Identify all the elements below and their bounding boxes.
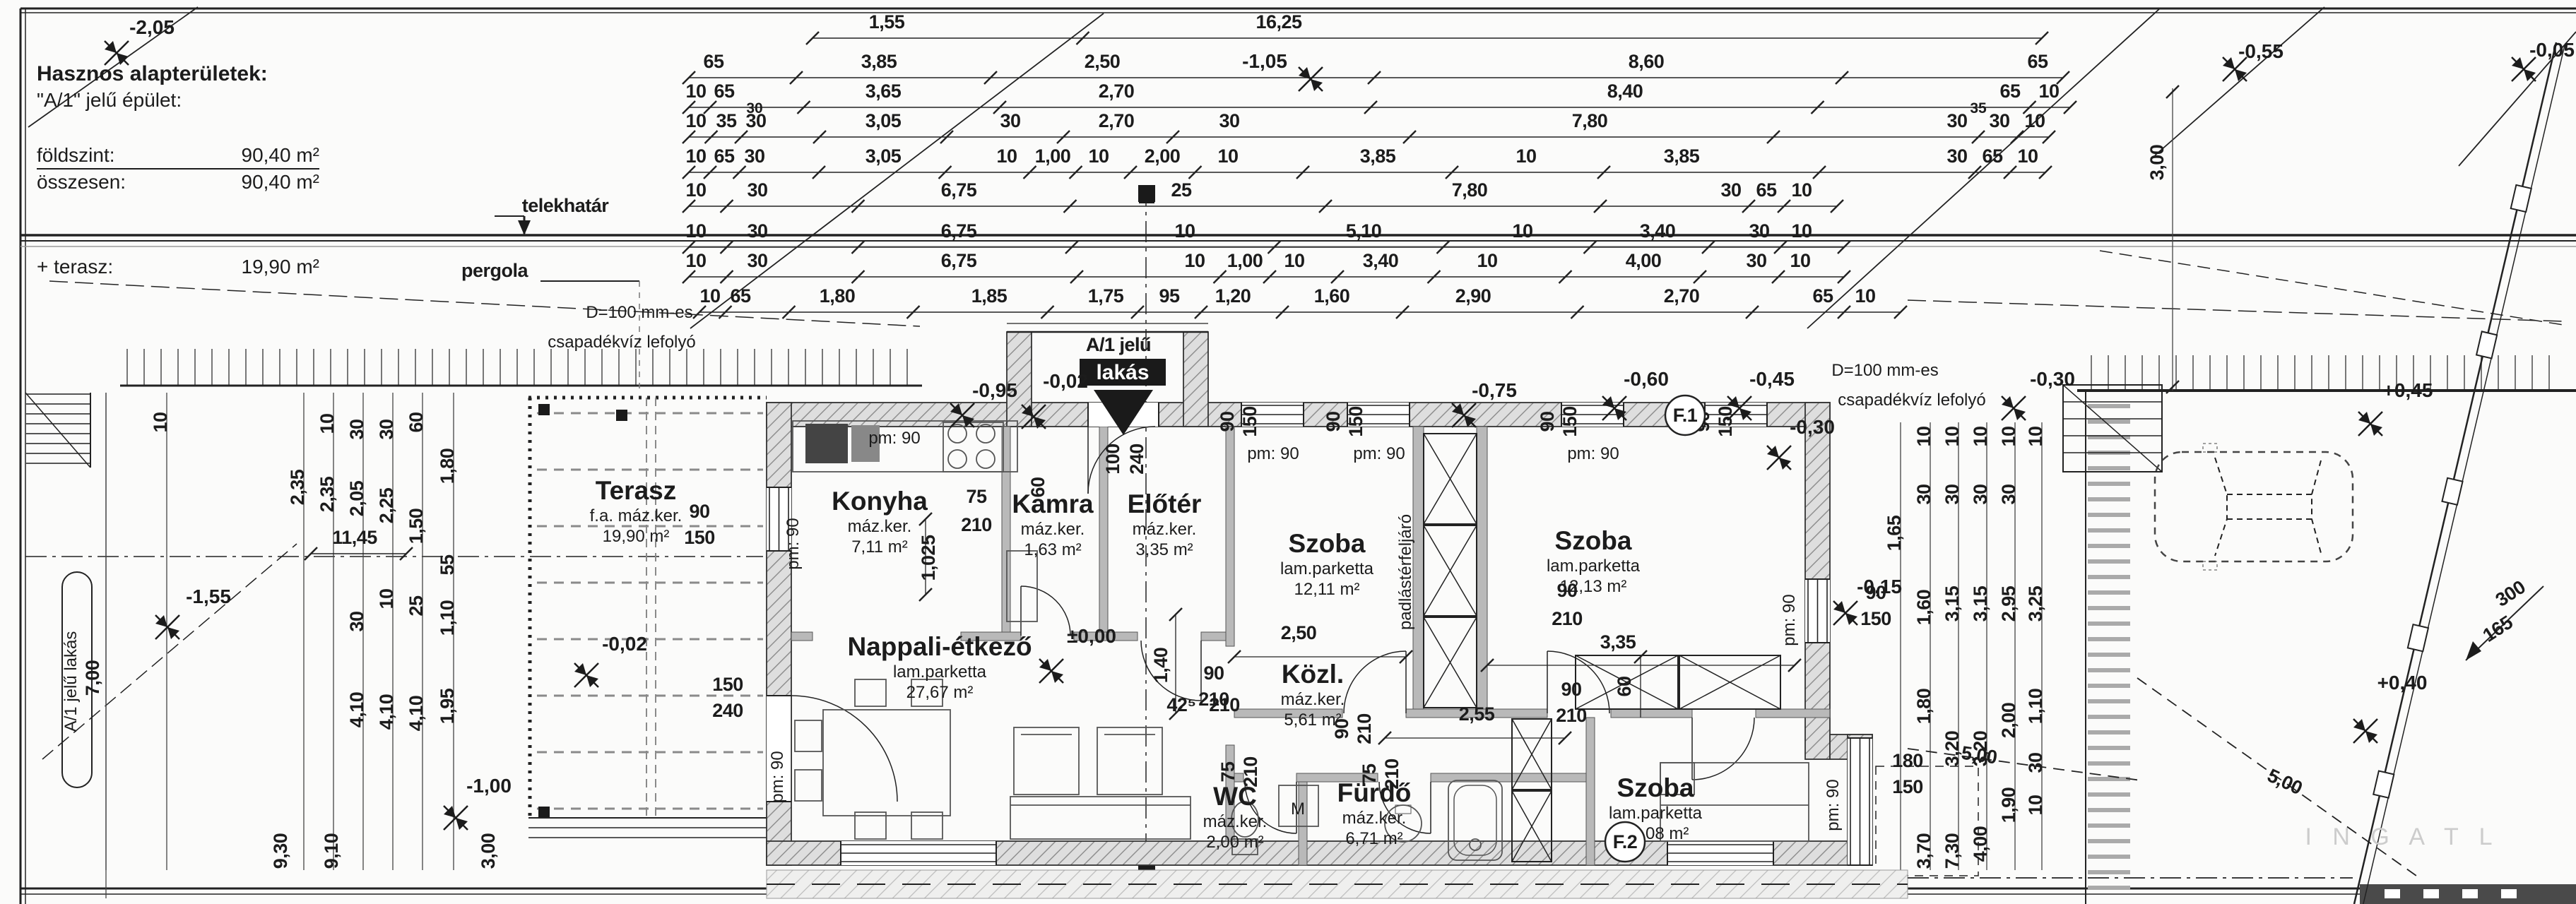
dim-label: 30 [1989,110,2009,131]
annotation-label: 10 [317,413,338,434]
annotation-label: 150 [1715,406,1736,437]
reference-marker: F.1 [1673,405,1698,426]
annotation-label: pm: 90 [1780,594,1799,646]
dim-label: 30 [747,179,767,201]
dim-label: 3,05 [865,145,902,167]
dim-label: 65 [730,285,751,307]
dim-label: 3,40 [1363,250,1399,271]
annotation-label: 10 [1998,426,2019,446]
title-subheading: "A/1" jelű épület: [37,89,333,112]
annotation-label: 10 [2025,426,2046,446]
room-area: 12,13 m² [1560,577,1627,596]
dim-label: 10 [996,145,1017,167]
annotation-label: 90 [1537,411,1558,432]
room-area: 5,61 m² [1284,710,1341,730]
level-value: -0,02 [1043,370,1088,392]
dim-label: 2,50 [1085,51,1121,72]
room-name: WC [1213,782,1257,811]
annotation-label: 5,00 [1960,742,1998,768]
annotation-label: 10 [2025,795,2046,815]
dim-label: 10 [1088,145,1109,167]
area-row-label: összesen: [37,169,187,195]
dim-label: 95 [1159,285,1180,307]
annotation-label: pm: 90 [768,751,787,802]
terrace-value: 19,90 m² [242,256,320,278]
annotation-label: 3,35 [1600,631,1636,653]
annotation-label: 60 [406,412,427,432]
dim-label: 10 [2017,145,2038,167]
dim-label: 6,75 [941,179,977,201]
area-row-label: földszint: [37,143,187,169]
level-value: -1,05 [1242,50,1287,72]
dim-label: 6,75 [941,220,977,242]
room-name: Szoba [1555,526,1632,555]
dim-label: 4,00 [1626,250,1662,271]
area-row-value: 90,40 m² [187,169,319,195]
annotation-label: 3,25 [2025,585,2046,621]
dim-label: 65 [714,81,735,102]
level-value: ±0,00 [1067,625,1116,647]
level-value: -0,55 [2238,40,2283,62]
annotation-label: M [1291,799,1305,819]
room-finish: máz.ker. [1021,520,1085,539]
annotation-label: 210 [1354,713,1375,744]
annotation-label: 1,10 [2025,689,2046,725]
room-area: 7,11 m² [851,537,908,557]
level-marker [574,663,598,687]
annotation-label: 1,95 [437,688,458,724]
annotation-label: 90 [1217,411,1238,432]
annotation-label: pm: 90 [868,429,920,448]
annotation-label: 2,05 [346,480,367,516]
annotation-label: 7,30 [1942,833,1963,869]
annotation-label: 1,90 [1998,787,2019,823]
dim-label: 10 [685,145,706,167]
room-area: 19,90 m² [603,527,670,546]
dim-label: 10 [2024,110,2045,131]
room-name: Kamra [1012,489,1094,518]
annotation-label: 42⁵ [1166,694,1195,715]
annotation-label: 30 [1998,484,2019,504]
annotation-label: 30 [346,611,367,631]
annotation-label: 30 [346,419,367,439]
level-marker [1833,601,1857,625]
dim-label: 6,75 [941,250,977,271]
dim-label: 10 [1855,285,1875,307]
dim-label: 1,80 [820,285,856,307]
room-finish: f.a. máz.ker. [590,506,683,525]
annotation-label: 30 [1913,484,1934,504]
annotation-label: 1,65 [1884,515,1905,551]
dim-label: 1,60 [1314,285,1350,307]
annotation-label: 30 [746,100,762,117]
level-marker [2512,57,2536,81]
level-marker [2002,396,2026,420]
annotation-label: 25 [406,595,427,617]
dim-label: 3,85 [1664,145,1700,167]
annotation-label: csapadékvíz lefolyó [548,333,695,352]
dim-label: 10 [1512,220,1532,242]
dim-label: 10 [1284,250,1304,271]
annotation-label: 4,10 [376,694,397,730]
annotation-label: 10 [1942,426,1963,446]
dim-label: 30 [747,250,767,271]
dim-label: 10 [1174,220,1195,242]
text-labels: 3035telekhatárpergolaD=100 mm-escsapadék… [61,100,2529,869]
annotation-label: 9,10 [321,833,342,869]
dim-label: 30 [1749,220,1769,242]
room-area: 3,35 m² [1135,540,1193,559]
room-name: Konyha [832,487,928,516]
dim-label: 10 [2038,81,2059,102]
annotation-label: 150 [1860,608,1891,629]
dim-label: 30 [747,220,767,242]
level-value: -0,05 [2529,39,2575,61]
level-value: -0,75 [1472,379,1517,401]
annotation-label: 9,30 [270,833,291,869]
room-name: Előtér [1128,489,1202,518]
annotation-label: 1,80 [1913,689,1934,725]
level-marker [1767,446,1791,470]
annotation-label: 3,00 [2146,145,2168,181]
annotation-label: 11,45 [332,527,377,548]
annotation-label: 30 [376,419,397,439]
level-marker [1299,67,1323,91]
annotation-label: 210 [1552,608,1583,629]
dim-label: 5,10 [1346,220,1382,242]
annotation-label: 150 [1239,406,1260,437]
level-value: -2,05 [129,16,175,38]
area-title-block: Hasznos alapterületek: "A/1" jelű épület… [37,62,333,195]
dim-label: 10 [685,220,706,242]
annotation-label: D=100 mm-es [1831,361,1938,380]
level-value: -0,30 [1790,416,1835,438]
annotation-label: 4,00 [1970,826,1991,862]
dim-label: 8,60 [1629,51,1665,72]
dimension-chains: 1,5516,25653,852,508,606510653,652,708,4… [683,11,2076,319]
level-value: +0,40 [2377,672,2428,694]
annotation-label: 75 [966,486,987,507]
level-marker [2358,412,2382,436]
annotation-label: pm: 90 [784,518,803,569]
room-finish: lam.parketta [1280,559,1374,578]
annotation-label: 150 [1559,406,1581,437]
dim-label: 65 [1999,81,2021,102]
annotation-label: 2,55 [1459,703,1495,725]
annotation-label: pergola [461,260,529,281]
annotation-label: 2,00 [1998,703,2019,739]
room-name: Szoba [1617,773,1694,802]
annotation-label: 90 [689,501,709,522]
reference-marker: F.2 [1613,831,1638,852]
dim-label: 10 [685,81,706,102]
dim-label: 65 [1812,285,1833,307]
room-name: Terasz [596,476,677,505]
level-value: -0,95 [972,379,1017,401]
annotation-label: 150 [684,527,715,548]
annotation-label: 2,35 [287,469,308,505]
room-name: Nappali-étkező [847,632,1032,661]
dim-label: 3,85 [1360,145,1396,167]
annotation-label: 10 [150,412,171,432]
annotation-label: 4,10 [406,696,427,732]
annotation-label: 1,40 [1150,648,1171,684]
dim-label: 2,90 [1455,285,1491,307]
dim-label: 2,70 [1664,285,1700,307]
dim-label: 65 [714,145,735,167]
annotation-label: D=100 mm-es [586,303,692,322]
dim-label: 10 [1477,250,1497,271]
level-value: -1,55 [186,585,231,607]
dim-label: 7,80 [1572,110,1608,131]
dim-label: 1,85 [971,285,1008,307]
dim-label: 10 [1790,250,1810,271]
dim-label: 30 [1746,250,1766,271]
floor-plan-drawing: 1,5516,25653,852,508,606510653,652,708,4… [0,0,2576,904]
level-marker [155,615,179,639]
annotation-label: 30 [2025,752,2046,773]
level-value: +0,45 [2383,379,2433,401]
dim-label: 1,55 [869,11,905,32]
annotation-label: 55 [437,554,458,576]
annotation-label: 10 [376,588,397,609]
dim-label: 10 [699,285,720,307]
level-value: -0,45 [1749,368,1795,390]
dim-label: 1,20 [1215,285,1251,307]
annotation-label: 3,15 [1970,585,1991,621]
floor-plan-sheet: 1,5516,25653,852,508,606510653,652,708,4… [0,0,2576,904]
level-value: -1,00 [466,775,512,797]
annotation-label: padlástérfeljáró [1396,514,1415,630]
entrance-label: lakás [1096,361,1149,384]
entrance-label: A/1 jelű [1086,334,1151,355]
terrace-area-row: + terasz: 19,90 m² [37,256,319,278]
dim-label: 35 [716,110,737,131]
annotation-label: 1,50 [406,509,427,545]
annotation-label: 2,25 [376,487,397,523]
annotation-label: 100 [1102,444,1123,475]
room-finish: máz.ker. [1133,520,1197,539]
annotation-label: 150 [1892,776,1923,797]
annotation-label: 240 [1126,444,1147,475]
level-value: -0,02 [602,633,647,655]
annotation-label: 30 [1970,484,1991,504]
level-marker [444,806,468,830]
annotation-label: 35 [1970,100,1987,117]
dim-label: 30 [744,145,764,167]
room-area: 6,71 m² [1345,829,1402,848]
dim-label: 1,75 [1088,285,1124,307]
level-marker [105,41,129,65]
annotation-label: 90 [1323,411,1344,432]
annotation-label: 1,60 [1913,590,1934,626]
level-value: -0,60 [1624,368,1669,390]
dim-label: 3,85 [861,51,897,72]
dim-label: 65 [2027,51,2048,72]
room-finish: lam.parketta [893,662,987,682]
annotation-label: 240 [712,700,743,721]
annotation-label: pm: 90 [1353,444,1405,463]
area-table: földszint: 90,40 m² összesen: 90,40 m² [37,143,319,195]
dim-label: 10 [1516,145,1536,167]
dim-label: 30 [1219,110,1239,131]
dim-label: 2,70 [1099,110,1135,131]
area-row-value: 90,40 m² [187,143,319,169]
annotation-label: 3,00 [478,833,499,869]
annotation-label: 90 [1561,679,1581,700]
annotation-label: 10 [1913,426,1934,446]
room-name: Szoba [1289,529,1366,558]
dim-label: 10 [685,179,706,201]
dim-label: 25 [1171,179,1192,201]
level-value: -0,30 [2030,368,2075,390]
dim-label: 10 [1791,220,1812,242]
annotation-label: 1,10 [437,600,458,636]
level-marker [2353,719,2377,743]
room-finish: máz.ker. [1342,809,1407,828]
level-value: -0,15 [1857,576,1902,597]
annotation-label: 1,80 [437,448,458,484]
room-area: 1,63 m² [1024,540,1081,559]
room-finish: máz.ker. [848,517,912,536]
annotation-label: 4,10 [346,692,367,728]
annotation-label: 1,025 [918,535,939,581]
annotation-label: 210 [961,514,992,535]
annotation-label: telekhatár [522,195,610,216]
level-marker [1039,659,1063,683]
title-heading: Hasznos alapterületek: [37,62,333,86]
annotation-label: 180 [1892,750,1923,771]
annotation-label: A/1 jelű lakás [61,631,81,732]
dim-label: 10 [685,250,706,271]
dim-label: 10 [1791,179,1812,201]
dim-label: 8,40 [1607,81,1643,102]
annotation-label: 150 [712,674,743,695]
room-area: 27,67 m² [906,683,974,702]
room-finish: lam.parketta [1609,804,1703,823]
annotation-label: 3,20 [1942,731,1963,767]
annotation-label: pm: 90 [1247,444,1299,463]
dim-label: 2,70 [1099,81,1135,102]
annotation-label: 3,15 [1942,585,1963,621]
dim-label: 65 [1982,145,2003,167]
room-area: 12,11 m² [1294,580,1360,599]
watermark: I N G A T L [2305,823,2499,850]
annotation-label: pm: 90 [1824,779,1843,831]
room-area: 2,00 m² [1206,833,1263,852]
room-name: Fürdő [1337,778,1412,807]
dim-label: 2,00 [1145,145,1181,167]
room-name: Közl. [1282,660,1344,689]
dim-label: 10 [685,110,706,131]
dim-label: 30 [1946,145,1967,167]
annotation-label: 150 [1345,406,1366,437]
dim-label: 1,00 [1035,145,1071,167]
room-finish: lam.parketta [1547,557,1641,576]
annotation-label: 7,00 [82,660,103,696]
annotation-label: pm: 90 [1567,444,1619,463]
dim-label: 30 [1000,110,1020,131]
dim-label: 3,65 [865,81,902,102]
dim-label: 1,00 [1227,250,1263,271]
dim-label: 30 [1946,110,1967,131]
annotation-label: 60 [1614,676,1635,696]
dim-label: 30 [1720,179,1741,201]
annotation-label: 75 [1217,761,1239,783]
dim-label: 10 [1217,145,1238,167]
annotation-label: 2,35 [317,476,338,512]
dim-label: 3,05 [865,110,902,131]
dim-label: 7,80 [1452,179,1488,201]
annotation-label: 2,50 [1281,622,1317,643]
annotation-label: 210 [1209,694,1240,715]
annotation-label: 2,95 [1998,585,2019,621]
room-finish: máz.ker. [1281,690,1345,709]
room-finish: máz.ker. [1203,812,1268,831]
annotation-label: 30 [1942,484,1963,504]
annotation-label: 210 [1556,705,1587,726]
dim-label: 3,40 [1640,220,1676,242]
annotation-label: 10 [1970,426,1991,446]
dim-label: 10 [1184,250,1205,271]
terrace-label: + terasz: [37,256,113,278]
dim-label: 65 [1756,179,1777,201]
annotation-label: 5,00 [2264,765,2306,799]
dim-label: 65 [703,51,724,72]
annotation-label: csapadékvíz lefolyó [1838,391,1985,410]
dim-label: 16,25 [1255,11,1302,32]
annotation-label: 90 [1203,662,1224,684]
annotation-label: 3,70 [1913,833,1934,869]
